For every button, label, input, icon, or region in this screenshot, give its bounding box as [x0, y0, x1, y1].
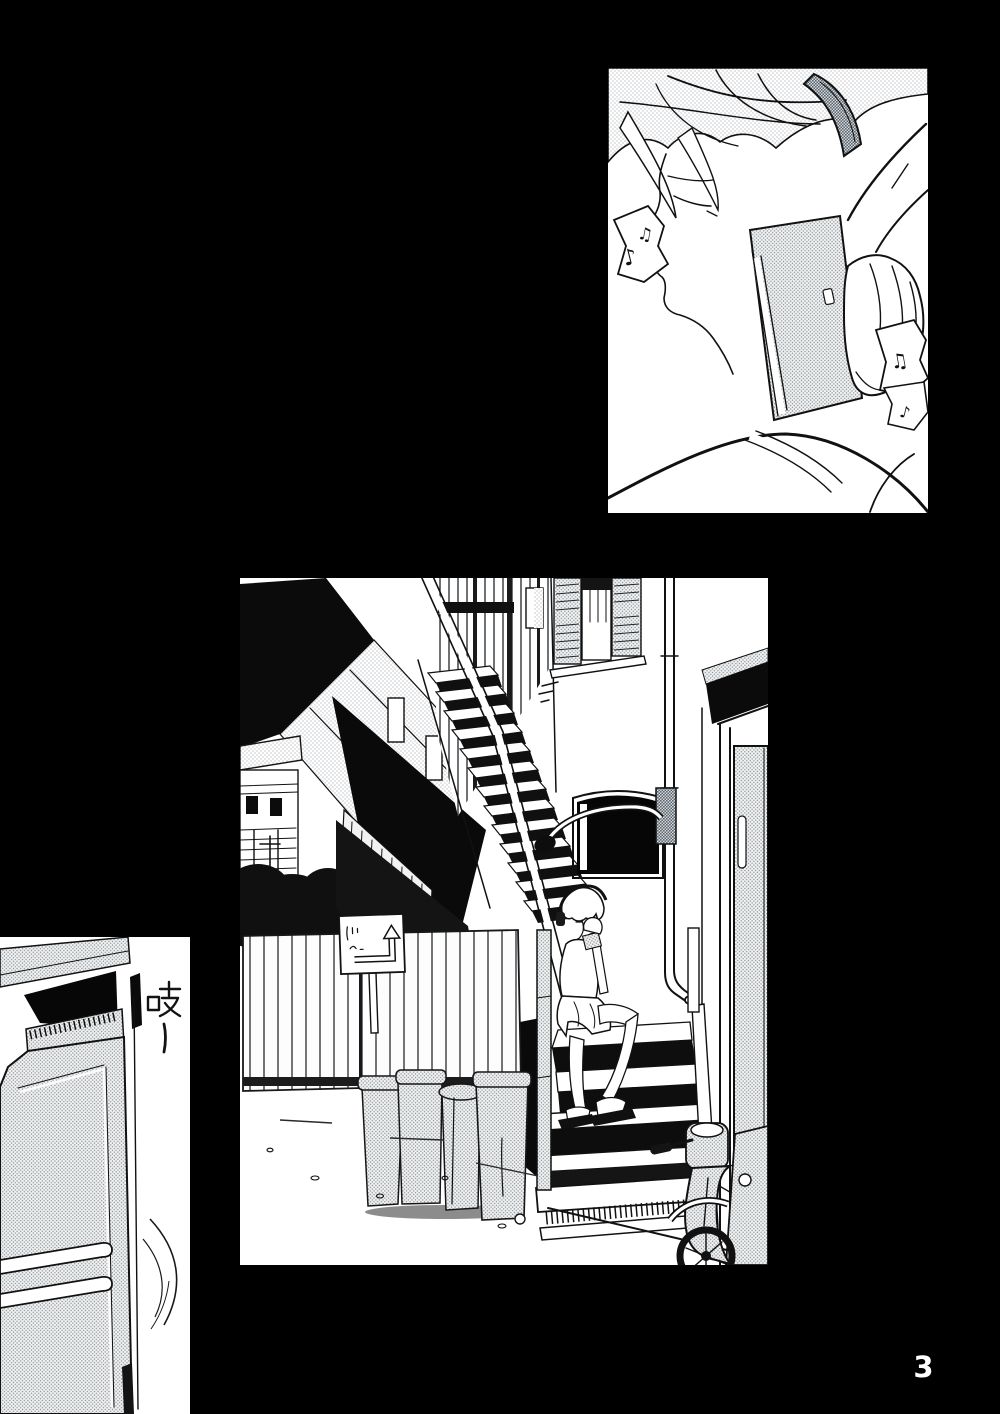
headphone-earcup	[556, 912, 565, 926]
door-handle-slit	[738, 816, 746, 868]
support-post	[537, 930, 551, 1190]
bin-wheel	[515, 1214, 525, 1224]
window	[426, 736, 442, 780]
sfx-again-radical	[160, 998, 180, 1016]
shuttered-window	[550, 578, 646, 678]
panel-headphones-closeup: ♪ ♫ ♫ ♪	[608, 68, 928, 513]
sfx-cross-stroke	[160, 982, 180, 996]
page-number: 3	[900, 1350, 948, 1390]
sfx-mouth-radical	[148, 997, 159, 1010]
door-bottom-shadow	[122, 1363, 134, 1414]
sfx-long-dash	[164, 1024, 166, 1052]
small-window	[526, 588, 543, 628]
manga-page: ♪ ♫ ♫ ♪	[0, 0, 1000, 1414]
door-leaf	[0, 997, 138, 1414]
open-window	[573, 791, 663, 878]
wristband	[583, 932, 602, 949]
trash-bin	[396, 1070, 446, 1204]
trash-bin	[473, 1072, 531, 1224]
panel-alley-staircase	[240, 578, 768, 1265]
sfx-creak	[138, 972, 186, 1084]
sign-post	[369, 973, 378, 1033]
door-slab	[0, 1037, 132, 1414]
stair-post	[688, 928, 699, 1012]
window	[388, 698, 404, 742]
